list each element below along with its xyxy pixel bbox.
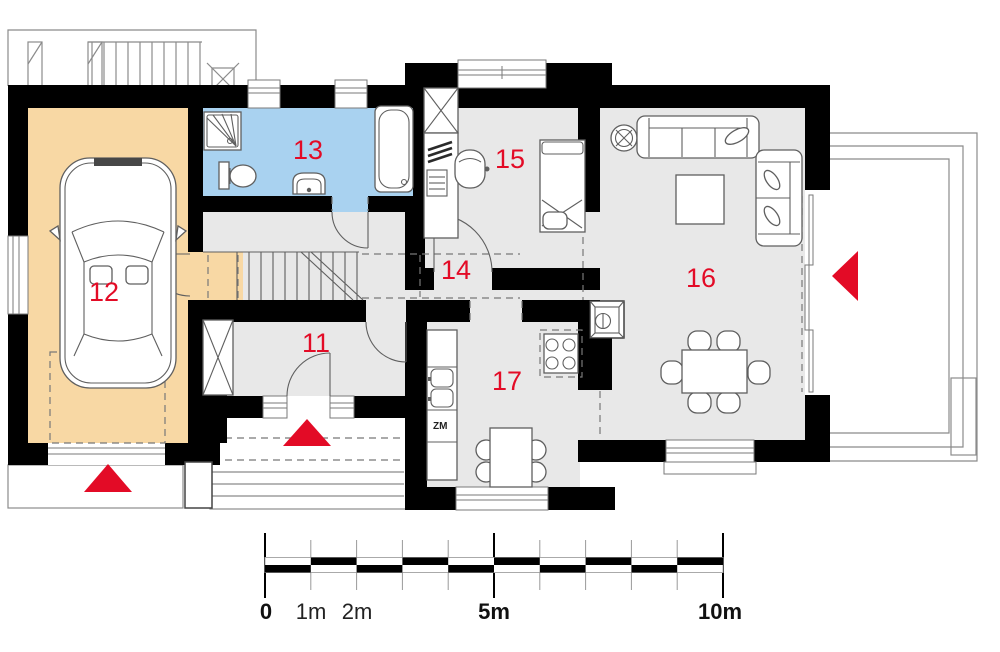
- entrance-arrow-icon-driveway: [84, 464, 132, 492]
- bathroom-door-opening: [332, 196, 368, 212]
- scale-label-1m: 1m: [296, 599, 327, 624]
- fireplace-icon: [590, 301, 624, 338]
- room-label-garage: 12: [89, 277, 119, 307]
- floor-plan-page: ZM: [0, 0, 1000, 652]
- chair-icon: [661, 361, 683, 384]
- terrace-sliding-door: [802, 190, 830, 395]
- kitchen-living-opening-floor: [578, 390, 600, 442]
- scale-label-2m: 2m: [342, 599, 373, 624]
- terrace-outline: [828, 133, 977, 461]
- vestibule-door-opening: [366, 300, 406, 322]
- plant-icon: [611, 125, 637, 151]
- room-label-living-room: 16: [686, 263, 716, 293]
- garage-window: [8, 236, 28, 314]
- chair-icon: [717, 392, 740, 413]
- front-door-sidelight-2: [330, 396, 354, 418]
- chair-icon: [688, 331, 711, 352]
- hall-wardrobe-icon: [203, 320, 233, 395]
- garage-door-opening: [188, 252, 243, 300]
- entrance-arrow-icon-terrace: [832, 251, 858, 301]
- stove-icon: [540, 330, 582, 377]
- bed-icon: [540, 140, 585, 232]
- scale-label-5m: 5m: [478, 599, 510, 624]
- front-door-opening: [287, 396, 330, 418]
- front-door-sidelight-1: [263, 396, 287, 418]
- room-label-bathroom: 13: [293, 135, 323, 165]
- scale-bar: 0 1m 2m 5m 10m: [260, 533, 742, 624]
- porch-column: [185, 462, 212, 508]
- sink-icon: [293, 173, 325, 194]
- shower-icon: [204, 112, 241, 150]
- kitchen-passage-opening: [470, 300, 522, 322]
- entrance-arrow-icon-porch: [283, 419, 331, 446]
- coffee-table-icon: [676, 175, 724, 224]
- sofa-icon: [637, 116, 759, 158]
- desk-icon: [424, 133, 458, 238]
- deck-stairs-icon: [28, 42, 200, 86]
- bedroom-window: [458, 60, 546, 88]
- room-label-bedroom-office: 15: [495, 144, 525, 174]
- room-label-vestibule: 11: [302, 328, 330, 358]
- bathtub-icon: [375, 106, 413, 192]
- kitchen-counter: ZM: [427, 330, 457, 480]
- chair-icon: [717, 331, 740, 352]
- bathroom-window-2: [335, 80, 367, 108]
- bathroom-window-1: [248, 80, 280, 108]
- scale-label-10m: 10m: [698, 599, 742, 624]
- car-icon: [50, 158, 186, 388]
- couch-icon: [756, 150, 802, 246]
- living-room-window: [664, 440, 756, 474]
- dishwasher-label: ZM: [433, 421, 447, 432]
- wardrobe-icon: [424, 88, 458, 133]
- floor-plan-drawing: ZM: [0, 0, 1000, 652]
- chair-icon: [748, 361, 770, 384]
- chair-icon: [688, 392, 711, 413]
- room-label-kitchen: 17: [492, 366, 522, 396]
- kitchen-window: [456, 487, 548, 510]
- scale-label-0: 0: [260, 599, 272, 624]
- room-label-hallway: 14: [441, 255, 471, 285]
